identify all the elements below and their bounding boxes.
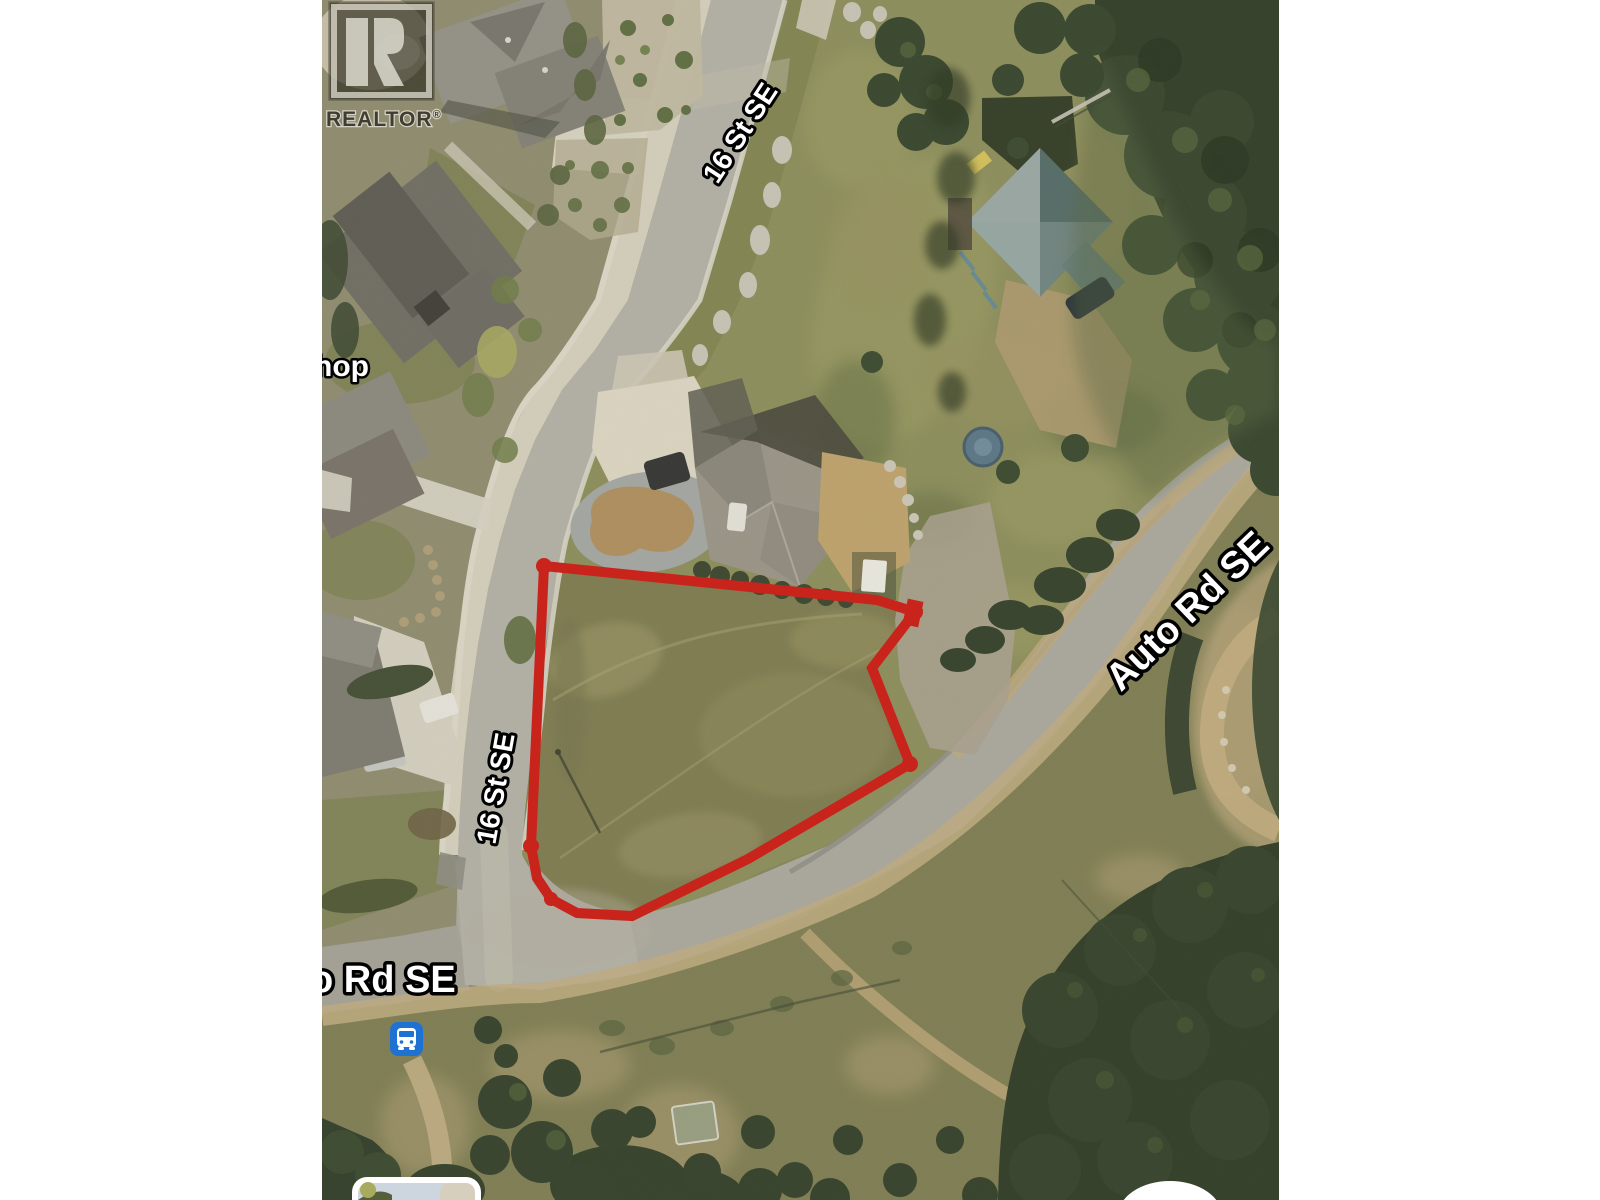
svg-text:o Rd SE: o Rd SE (310, 959, 456, 1001)
svg-text:REALTOR®: REALTOR® (326, 108, 442, 131)
svg-text:hop: hop (314, 350, 369, 383)
